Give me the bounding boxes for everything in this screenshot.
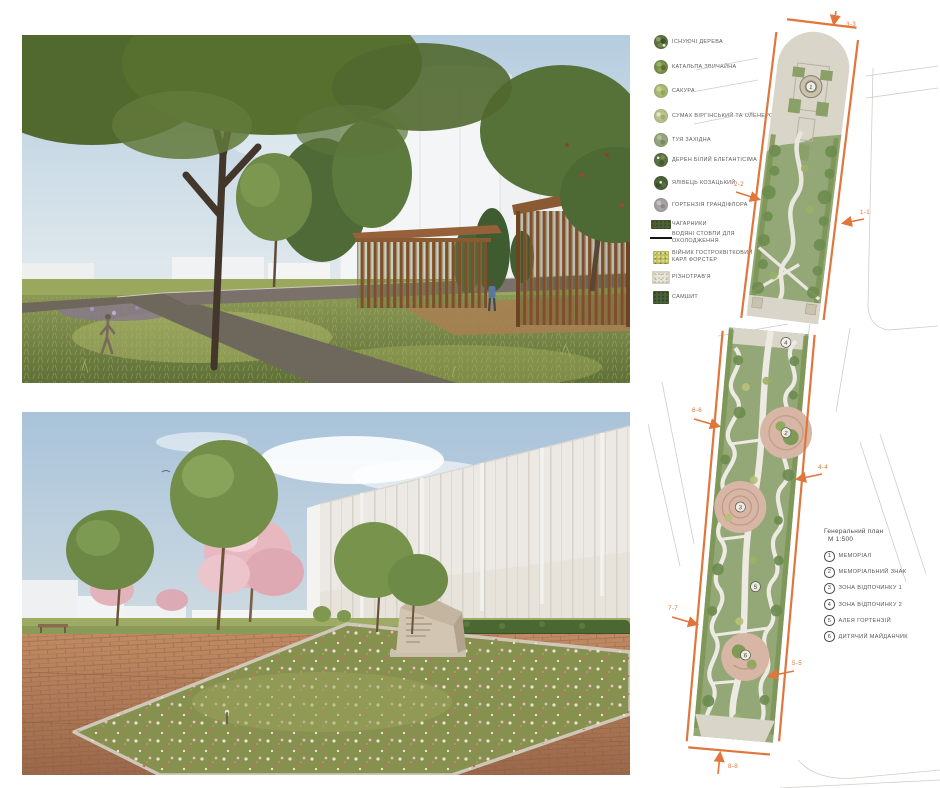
- plan-legend-item: 1МЕМОРІАЛ: [824, 551, 940, 562]
- sumac-symbol: [654, 109, 668, 123]
- svg-text:6-6: 6-6: [692, 407, 702, 414]
- park-strip: 4 2 3 5 6: [686, 327, 820, 756]
- item-number-badge: 3: [824, 583, 835, 594]
- item-number-badge: 5: [824, 615, 835, 626]
- general-plan-title: Генеральний план: [824, 528, 940, 535]
- item-number-badge: 6: [824, 631, 835, 642]
- shrubs-swatch: [651, 220, 671, 229]
- svg-text:7-7: 7-7: [668, 605, 678, 612]
- water-columns-line: [650, 237, 672, 240]
- boxwood-swatch: [653, 291, 669, 304]
- section-8-8: 8-8: [718, 754, 738, 774]
- thuja-symbol: [654, 133, 668, 147]
- juniper-symbol: [654, 176, 668, 190]
- item-label: ДИТЯЧИЙ МАЙДАНЧИК: [839, 634, 908, 640]
- item-number-badge: 1: [824, 551, 835, 562]
- svg-text:1-1: 1-1: [860, 209, 870, 216]
- plaza-render-canvas: [22, 412, 630, 775]
- existing-trees-symbol: [654, 35, 668, 49]
- catalpa-symbol: [654, 60, 668, 74]
- park-render-canvas: [22, 35, 630, 383]
- item-label: МЕМОРІАЛ: [839, 553, 872, 559]
- item-number-badge: 2: [824, 567, 835, 578]
- meadow-mix-swatch: [652, 271, 670, 284]
- plan-legend-item: 4ЗОНА ВІДПОЧИНКУ 2: [824, 599, 940, 610]
- site-plan-upper: 1: [688, 6, 940, 338]
- render-memorial-plaza: [22, 412, 630, 775]
- svg-text:5-5: 5-5: [792, 660, 802, 667]
- section-2-2: 2-2: [734, 181, 758, 199]
- item-label: МЕМОРІАЛЬНИЙ ЗНАК: [839, 569, 907, 575]
- plan-legend-item: 6ДИТЯЧИЙ МАЙДАНЧИК: [824, 631, 940, 642]
- dogwood-symbol: [654, 153, 668, 167]
- hydrangea-symbol: [654, 198, 668, 212]
- reed-grass-swatch: [653, 251, 669, 264]
- item-label: ЗОНА ВІДПОЧИНКУ 1: [839, 585, 903, 591]
- sakura-symbol: [654, 84, 668, 98]
- section-1-1: 1-1: [844, 209, 870, 223]
- svg-text:3-3: 3-3: [846, 21, 856, 28]
- plan-legend-item: 3ЗОНА ВІДПОЧИНКУ 1: [824, 583, 940, 594]
- plan-legend-item: 2МЕМОРІАЛЬНИЙ ЗНАК: [824, 567, 940, 578]
- item-label: АЛЕЯ ГОРТЕНЗІЙ: [839, 618, 891, 624]
- svg-text:8-8: 8-8: [728, 763, 738, 770]
- memorial-strip: 1: [741, 18, 859, 328]
- item-label: ЗОНА ВІДПОЧИНКУ 2: [839, 602, 903, 608]
- general-plan-scale: М 1:500: [828, 536, 940, 543]
- render-park-pavilions: [22, 35, 630, 383]
- svg-text:4-4: 4-4: [818, 464, 828, 471]
- presentation-board: ІСНУЮЧІ ДЕРЕВА КАТАЛЬПА ЗВИЧАЙНА САКУРА …: [0, 0, 940, 788]
- general-plan-legend: Генеральний план М 1:500 1МЕМОРІАЛ 2МЕМО…: [824, 528, 940, 648]
- item-number-badge: 4: [824, 599, 835, 610]
- plan-legend-item: 5АЛЕЯ ГОРТЕНЗІЙ: [824, 615, 940, 626]
- svg-text:2-2: 2-2: [734, 181, 744, 188]
- section-7-7: 7-7: [668, 605, 696, 624]
- hedge: [450, 620, 630, 636]
